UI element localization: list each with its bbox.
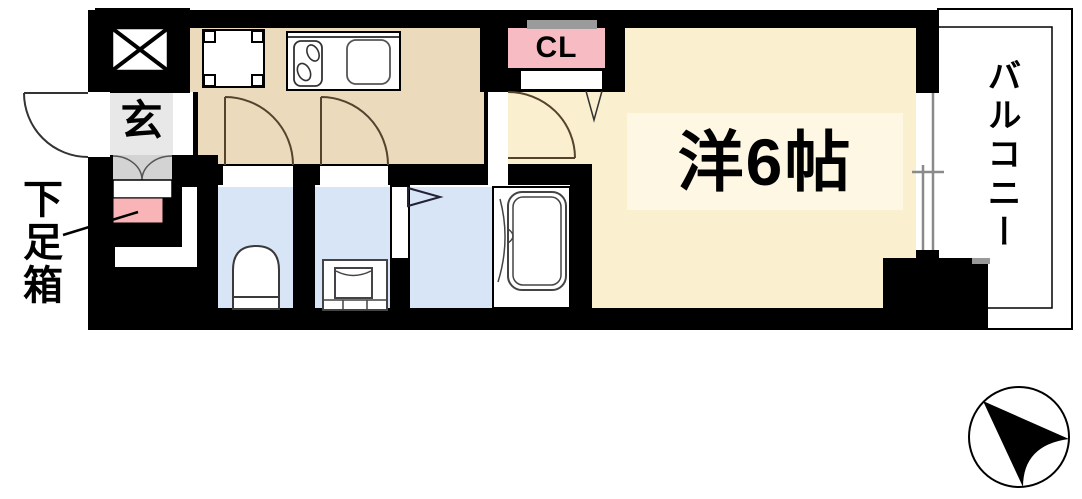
- shoe-box-label: 下足箱: [12, 172, 66, 312]
- wall-bottom-right-block: [883, 258, 988, 330]
- entrance-door-swing: [24, 93, 88, 157]
- elevator-icon: [112, 28, 168, 71]
- wall-entrance-divider: [193, 92, 198, 165]
- bathtub-outer: [508, 192, 566, 290]
- bathroom-floor: [410, 187, 493, 308]
- washroom-door-opening: [320, 166, 388, 185]
- balcony-label: バルコニー: [976, 48, 1026, 263]
- table-corner: [252, 31, 263, 42]
- entrance-door-opening: [88, 92, 110, 157]
- toilet-bowl: [233, 246, 279, 297]
- sink-icon: [347, 40, 390, 84]
- toilet-icon: [233, 246, 279, 309]
- washstand-icon: [323, 260, 387, 310]
- main-room-door-opening: [488, 92, 508, 185]
- wall-right-of-bathtub: [570, 185, 592, 308]
- bathroom-door-opening: [392, 187, 408, 258]
- toilet-door-opening: [223, 166, 293, 185]
- entrance-fixtures: [63, 155, 172, 235]
- wall-left-upper: [88, 10, 110, 93]
- table-corner: [252, 75, 263, 86]
- kitchen: [203, 30, 400, 90]
- wall-toilet-washroom: [293, 185, 315, 308]
- wall-above-room-door: [480, 28, 508, 92]
- balcony-window: [912, 93, 944, 250]
- table-corner: [204, 75, 215, 86]
- bathtub-icon: [498, 192, 566, 290]
- wall-top: [95, 10, 940, 28]
- closet-door: [520, 70, 603, 90]
- entrance-step: [113, 180, 172, 198]
- main-room-label: 洋6帖: [627, 113, 903, 210]
- wall-niche-horizontal: [115, 247, 197, 267]
- closet-label: CL: [508, 28, 605, 68]
- wall-niche-vertical: [182, 187, 197, 247]
- wall-bottom: [95, 308, 940, 330]
- entrance-threshold: [173, 92, 193, 165]
- entrance-label: 玄: [110, 88, 173, 154]
- floor-plan: 玄 下足箱 CL 洋6帖 バルコニー: [0, 0, 1082, 499]
- toilet-base: [233, 297, 279, 309]
- compass-north-icon: [969, 387, 1069, 487]
- shoe-box: [113, 198, 163, 223]
- floor-plan-drawing: [0, 0, 1082, 499]
- table-corner: [204, 31, 215, 42]
